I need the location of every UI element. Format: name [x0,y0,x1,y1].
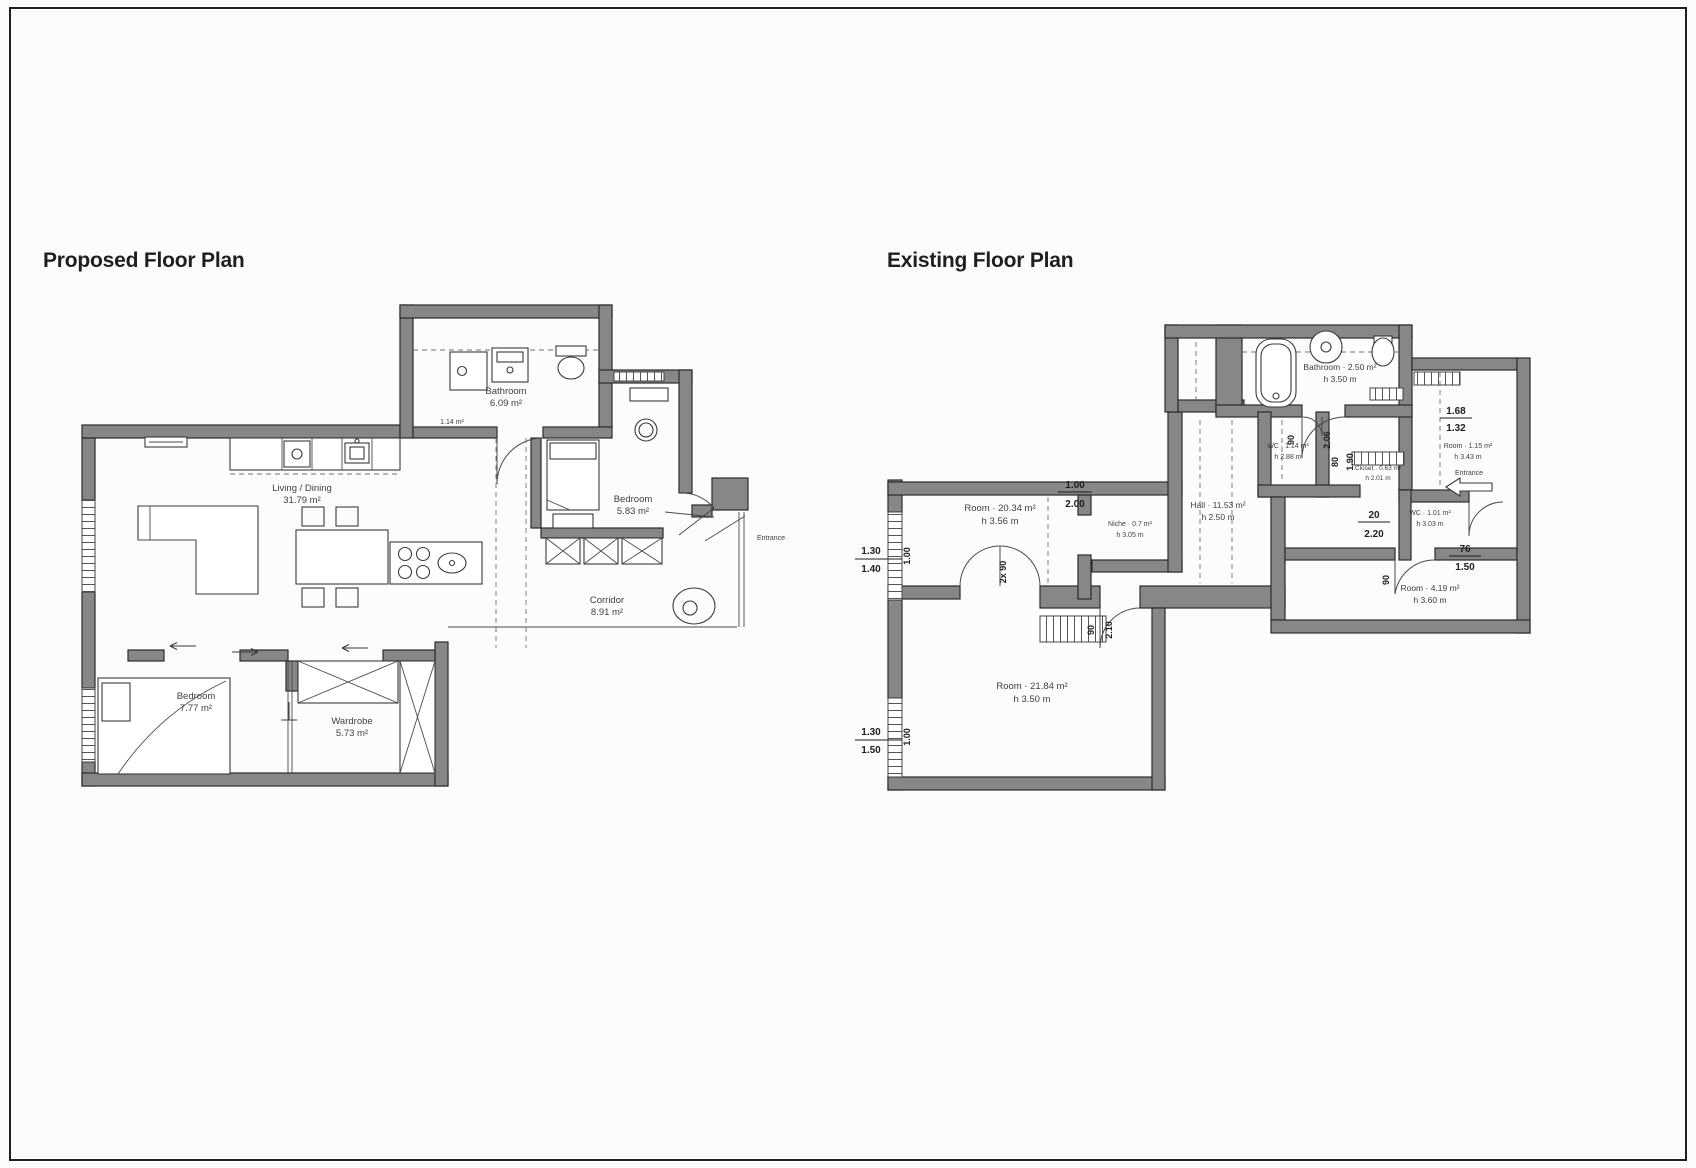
bedroom2-area: 7.77 m² [180,703,212,714]
ex-room-tr-height: h 3.43 m [1454,454,1481,461]
dim-door-hall-l: 2.10 [1104,621,1114,639]
dim-win1-top: 1.30 [861,546,881,557]
ex-hall-height: h 2.50 m [1201,512,1234,522]
ex-room-br-label: Room · 4.19 m² [1400,583,1459,593]
dim-door-wc-w: 80 [1330,457,1340,467]
bedroom-area: 5.83 m² [617,506,649,517]
dim-opening-top: 1.00 [1065,480,1085,491]
ex-room-upper-height: h 3.56 m [982,516,1019,527]
dim-door-hall-w: 90 [1086,625,1096,635]
bedroom2-label: Bedroom [177,691,216,702]
wardrobe-label: Wardrobe [331,716,372,727]
ex-closet-height: h 2.01 m [1365,475,1390,482]
ex-bathroom-height: h 3.50 m [1323,374,1356,384]
ex-wc2-label: WC · 1.01 m² [1409,510,1451,517]
bedroom-label: Bedroom [614,494,653,505]
sofa [138,506,258,594]
existing-walls [888,325,1530,790]
proposed-floor-plan: Living / Dining 31.79 m² Bathroom 6.09 m… [82,305,785,786]
existing-floor-plan: Bathroom · 2.50 m² h 3.50 m WC · 1.14 m²… [855,325,1530,790]
dim-double-door: 2x 90 [998,561,1008,584]
dim-corridor-bottom: 2.20 [1364,529,1384,540]
corridor-label: Corridor [590,595,624,606]
ex-room-upper-label: Room · 20.34 m² [964,503,1035,514]
floor-plans-canvas: Living / Dining 31.79 m² Bathroom 6.09 m… [0,0,1696,1168]
drawing-sheet: Proposed Floor Plan Existing Floor Plan [0,0,1696,1168]
ex-bathroom-label: Bathroom · 2.50 m² [1303,362,1376,372]
ex-closet-label: Closet · 0.63 m² [1355,465,1402,472]
wardrobe-area: 5.73 m² [336,728,368,739]
dim-door-bath-l: 2.06 [1322,431,1332,449]
shaft-area: 1.14 m² [440,419,464,426]
ex-room-lower-label: Room · 21.84 m² [996,681,1067,692]
living-room-label: Living / Dining [272,483,332,494]
dim-win2-top: 1.30 [861,727,881,738]
bathroom-area: 6.09 m² [490,398,522,409]
dim-opening-bottom: 2.00 [1065,499,1085,510]
closet-boxes [546,538,662,564]
dim-door-br: 90 [1381,575,1391,585]
kitchen-counter [145,437,400,474]
stove-island [390,542,482,584]
corridor-area: 8.91 m² [591,607,623,618]
living-room-area: 31.79 m² [283,495,321,506]
bathroom-label: Bathroom [485,386,526,397]
dim-entry-top: 76 [1459,544,1471,555]
ex-room-tr-label: Room · 1.15 m² [1444,443,1493,450]
dim-win2-bottom: 1.50 [861,745,881,756]
ex-room-br-height: h 3.60 m [1413,595,1446,605]
ex-wc2-height: h 3.03 m [1416,521,1443,528]
dim-win1-side: 1.00 [902,547,912,565]
ex-niche-height: h 3.05 m [1116,532,1143,539]
entry-label: Entrance [757,535,785,542]
dim-corridor-top: 20 [1368,510,1380,521]
dining-table [296,507,388,607]
ex-niche-label: Niche · 0.7 m² [1108,521,1153,528]
dim-right-bottom: 1.32 [1446,423,1466,434]
dim-door-wc-l: 1.90 [1345,453,1355,471]
dim-win2-side: 1.00 [902,728,912,746]
dim-right-top: 1.68 [1446,406,1466,417]
ex-wc-height: h 2.88 m [1274,454,1301,461]
ex-entrance-label: Entrance [1455,470,1483,477]
ex-hall-label: Hall · 11.53 m² [1190,500,1245,510]
dim-win1-bottom: 1.40 [861,564,881,575]
ex-room-lower-height: h 3.50 m [1014,694,1051,705]
dim-entry-bottom: 1.50 [1455,562,1475,573]
dim-door-bath-w: 90 [1286,435,1296,445]
existing-doors [960,417,1503,648]
